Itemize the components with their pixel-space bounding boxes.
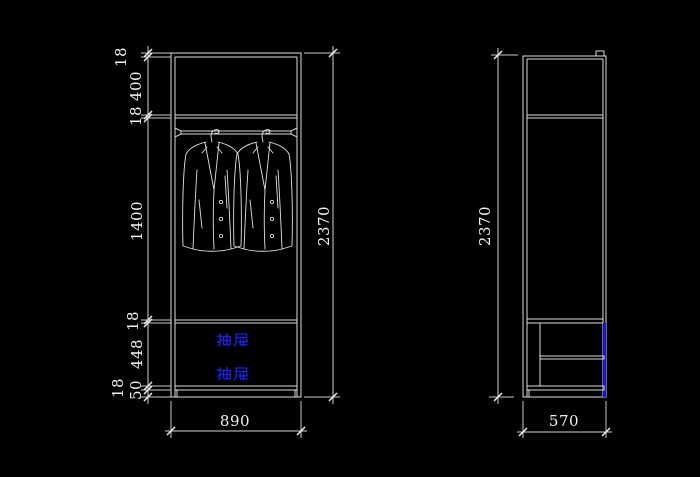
dim-front-height: 2370 bbox=[304, 46, 340, 404]
dim-side-depth: 570 bbox=[517, 401, 612, 438]
glyph-chou bbox=[217, 368, 230, 380]
side-drawer-divider bbox=[540, 356, 604, 359]
drawing-viewport[interactable]: 18 400 18 1400 18 448 18 50 2370 890 237… bbox=[0, 0, 700, 477]
dim-text-890: 890 bbox=[220, 412, 250, 430]
dim-front-width: 890 bbox=[165, 401, 307, 438]
dim-text-18-shelf: 18 bbox=[127, 106, 145, 126]
dim-chain-left: 18 400 18 1400 18 448 18 50 bbox=[109, 46, 171, 404]
front-outer-frame bbox=[171, 53, 301, 397]
jacket-button bbox=[219, 200, 222, 203]
dim-side-height: 2370 bbox=[476, 48, 518, 404]
cad-drawing-stage: 18 400 18 1400 18 448 18 50 2370 890 237… bbox=[0, 0, 700, 477]
dim-text-2370-side: 2370 bbox=[476, 206, 494, 246]
jacket-hem bbox=[193, 249, 231, 251]
jacket-left-side bbox=[234, 142, 257, 249]
dim-text-2370-front: 2370 bbox=[315, 206, 333, 246]
jacket-lapels bbox=[205, 143, 219, 190]
jacket-right-side bbox=[269, 142, 292, 249]
dim-text-18-bottom: 18 bbox=[109, 378, 127, 398]
dim-text-18-mid: 18 bbox=[124, 311, 142, 331]
drawer-label-1 bbox=[217, 334, 247, 347]
jacket-collar bbox=[202, 147, 222, 153]
jacket-lapels bbox=[256, 143, 270, 190]
jacket-placket bbox=[264, 190, 265, 249]
jacket-collar bbox=[253, 147, 273, 153]
jacket-left-side bbox=[183, 142, 206, 249]
dim-text-570: 570 bbox=[549, 412, 579, 430]
dim-text-18-top: 18 bbox=[112, 47, 130, 67]
side-outer-frame bbox=[523, 56, 606, 397]
side-mid-shelf bbox=[527, 319, 603, 323]
front-mid-shelf bbox=[175, 320, 297, 323]
front-bottom-shelf bbox=[175, 386, 297, 390]
jacket-placket bbox=[213, 190, 214, 249]
rod-bracket-right bbox=[291, 128, 297, 137]
jacket-button bbox=[219, 234, 222, 237]
jacket-button bbox=[270, 200, 273, 203]
glyph-ti bbox=[234, 334, 247, 346]
drawer-label-2 bbox=[217, 368, 247, 381]
dim-text-448: 448 bbox=[128, 339, 146, 369]
glyph-chou bbox=[217, 334, 230, 346]
side-view bbox=[523, 51, 606, 397]
side-bottom-shelf bbox=[527, 386, 604, 390]
dim-text-400: 400 bbox=[127, 71, 145, 101]
jacket-button bbox=[219, 217, 222, 220]
jacket-button bbox=[270, 234, 273, 237]
side-top-back-trim bbox=[596, 51, 604, 56]
glyph-ti bbox=[234, 368, 247, 380]
hanging-jacket-1 bbox=[183, 130, 242, 252]
side-top-shelf bbox=[527, 115, 603, 118]
front-view bbox=[171, 53, 301, 397]
hanging-jacket-2 bbox=[234, 130, 293, 252]
front-top-shelf bbox=[175, 115, 297, 118]
jacket-hem bbox=[244, 249, 282, 251]
jacket-right-side bbox=[218, 142, 241, 249]
dim-text-50: 50 bbox=[127, 380, 145, 400]
jacket-button bbox=[270, 217, 273, 220]
rod-bracket-left bbox=[175, 128, 181, 137]
dim-text-1400: 1400 bbox=[128, 201, 146, 241]
